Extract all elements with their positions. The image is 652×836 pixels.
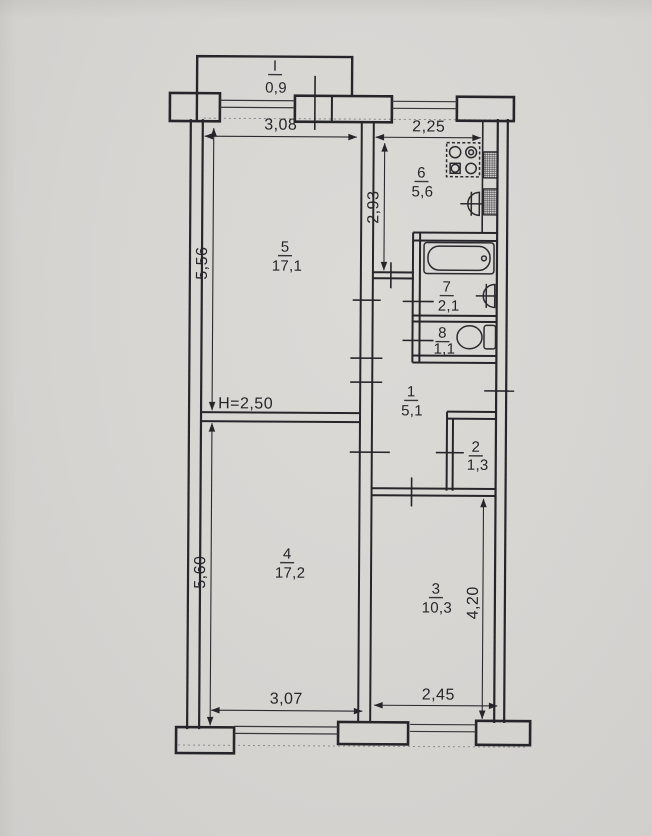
dimension-lines	[201, 128, 501, 727]
dim-left-upper: 5,56	[194, 247, 211, 280]
wash-basin-icon	[476, 284, 497, 308]
room-6-label: 6 5,6	[411, 164, 433, 200]
svg-text:10,3: 10,3	[422, 600, 453, 617]
room-4-label: 4 17,2	[275, 546, 306, 582]
room-3-label: 3 10,3	[422, 581, 453, 617]
window-kitchen	[392, 101, 457, 108]
svg-text:5,6: 5,6	[411, 183, 433, 200]
svg-text:3: 3	[432, 581, 441, 598]
room-7-label: 7 2,1	[438, 279, 460, 315]
dim-left-lower: 5,60	[192, 556, 209, 589]
room-5-label: 5 17,1	[272, 239, 303, 275]
dim-kitchen-depth: 2,93	[365, 191, 382, 224]
room-8-label: 8 1,1	[434, 325, 456, 358]
pier-bottom-right	[476, 721, 530, 745]
bathtub-icon	[424, 243, 494, 274]
pier-top-right	[457, 97, 514, 121]
dim-right-lower: 4,20	[465, 586, 482, 619]
pier-bottom-center	[338, 722, 408, 744]
svg-text:2,1: 2,1	[438, 298, 460, 315]
svg-text:8: 8	[438, 325, 447, 342]
window-room4	[234, 726, 338, 734]
balcony-label: I 0,9	[265, 58, 287, 97]
room-1-label: 1 5,1	[401, 383, 423, 419]
svg-text:0,9: 0,9	[265, 80, 287, 97]
dim-top-right: 2,25	[412, 118, 445, 135]
svg-text:4: 4	[283, 546, 292, 563]
svg-text:17,2: 17,2	[275, 565, 306, 582]
dim-bottom-right: 2,45	[422, 687, 455, 704]
svg-text:5: 5	[281, 239, 290, 256]
window-room3	[410, 724, 476, 731]
room-2-label: 2 1,3	[467, 439, 489, 474]
svg-text:7: 7	[442, 279, 451, 296]
dim-top-left: 3,08	[264, 117, 297, 134]
svg-text:17,1: 17,1	[272, 258, 303, 275]
pier-bottom-left	[176, 727, 234, 753]
vent-shaft-icon	[483, 152, 497, 215]
svg-text:1,1: 1,1	[434, 341, 456, 358]
svg-text:1,3: 1,3	[467, 457, 489, 474]
floor-plan-scan: 3,08 2,25 2,93 5,56 5,60 4,20 3,07 2,45 …	[0, 0, 652, 836]
svg-text:5,1: 5,1	[401, 402, 423, 419]
stove-icon	[446, 143, 479, 177]
ceiling-height-note: H=2,50	[218, 395, 273, 412]
dim-bottom-left: 3,07	[270, 691, 303, 708]
svg-text:I: I	[273, 58, 278, 75]
toilet-icon	[457, 325, 496, 349]
window-room5-balcony	[220, 100, 295, 107]
svg-text:2: 2	[471, 439, 480, 456]
kitchen-sink-icon	[460, 192, 482, 216]
svg-text:1: 1	[407, 383, 416, 400]
floor-plan-drawing: 3,08 2,25 2,93 5,56 5,60 4,20 3,07 2,45 …	[0, 0, 652, 836]
pier-top-left	[170, 93, 220, 121]
svg-text:6: 6	[417, 164, 426, 181]
